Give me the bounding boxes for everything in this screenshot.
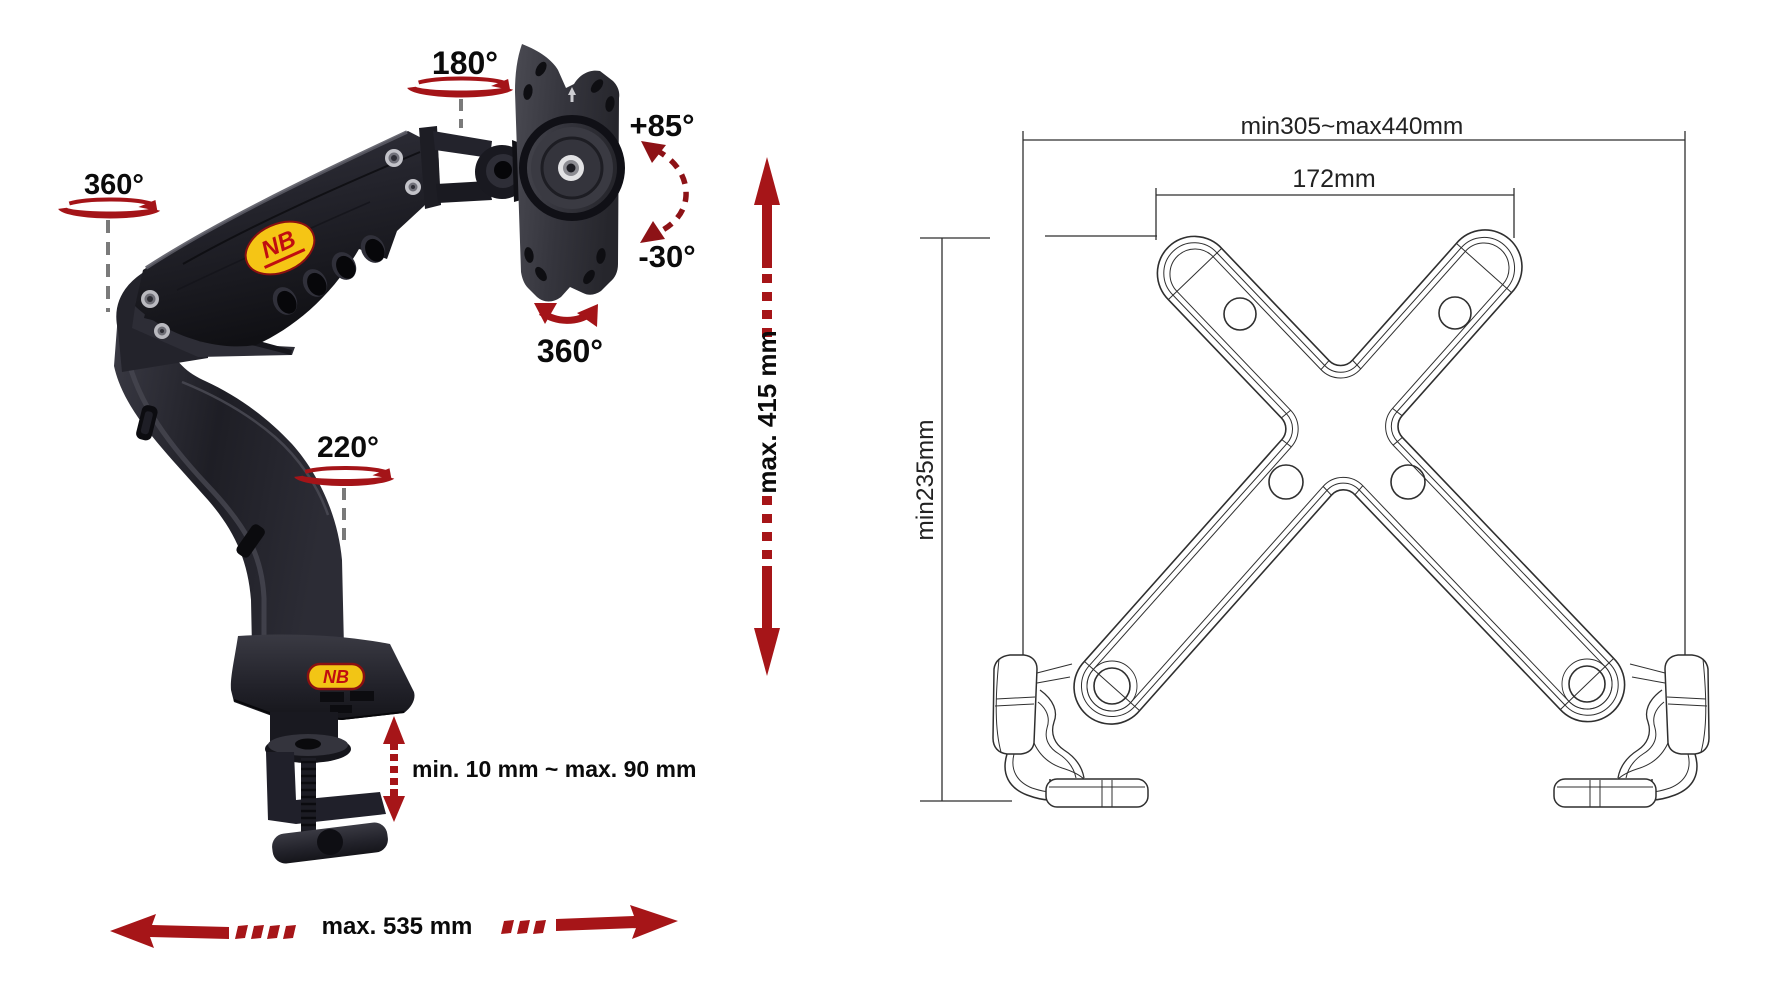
svg-text:220°: 220°	[317, 431, 379, 464]
svg-text:360°: 360°	[537, 333, 603, 369]
svg-text:180°: 180°	[432, 45, 498, 81]
svg-text:min235mm: min235mm	[912, 419, 939, 540]
svg-text:+85°: +85°	[630, 108, 695, 143]
svg-text:172mm: 172mm	[1292, 165, 1375, 193]
svg-text:max. 415 mm: max. 415 mm	[752, 330, 782, 493]
svg-text:NB: NB	[323, 667, 349, 687]
svg-text:max. 535 mm: max. 535 mm	[322, 913, 473, 940]
svg-text:min305~max440mm: min305~max440mm	[1241, 113, 1464, 140]
svg-text:-30°: -30°	[638, 239, 695, 274]
svg-text:min. 10 mm ~ max. 90 mm: min. 10 mm ~ max. 90 mm	[412, 756, 696, 782]
svg-text:360°: 360°	[84, 169, 144, 201]
